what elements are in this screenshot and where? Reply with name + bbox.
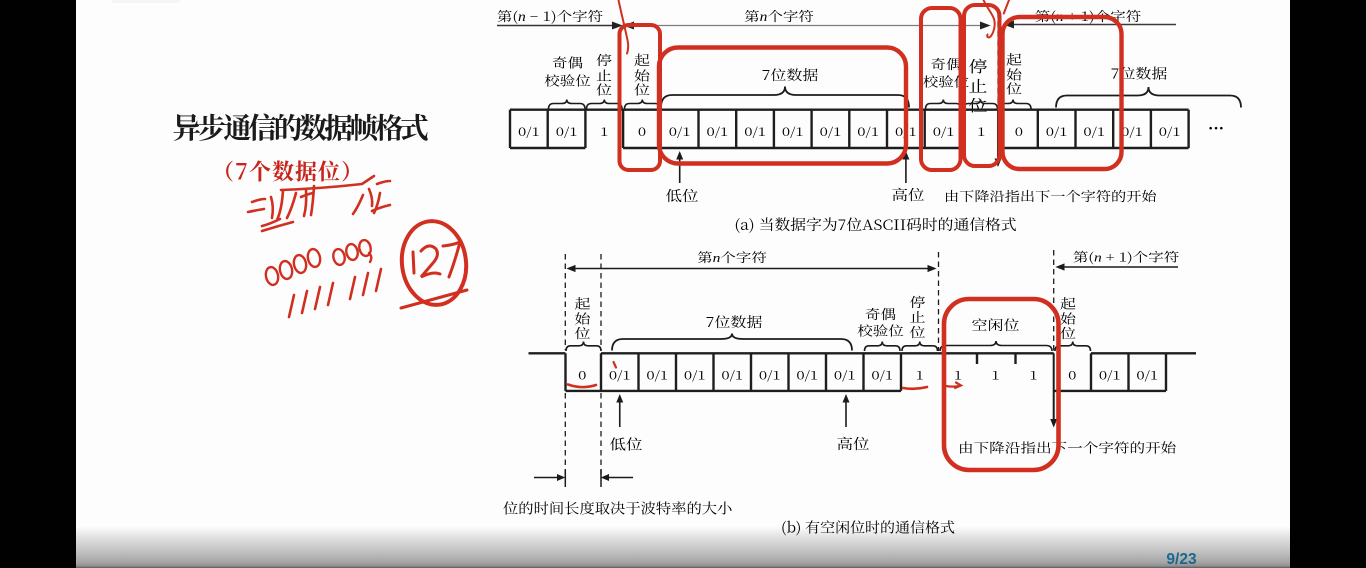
svg-text:校验位: 校验位 [544, 71, 590, 90]
svg-text:···: ··· [1208, 116, 1224, 139]
svg-text:0/1: 0/1 [759, 365, 781, 383]
svg-text:0/1: 0/1 [834, 365, 856, 383]
svg-text:0/1: 0/1 [556, 122, 578, 140]
svg-text:校验位: 校验位 [857, 321, 903, 340]
svg-text:（7个数据位）: （7个数据位） [212, 156, 364, 187]
svg-text:高位: 高位 [837, 433, 870, 453]
svg-text:0/1: 0/1 [1136, 365, 1158, 383]
svg-text:0: 0 [1015, 122, 1023, 140]
svg-text:1: 1 [1029, 365, 1037, 383]
svg-text:空闲位: 空闲位 [972, 315, 1020, 334]
svg-text:位: 位 [1006, 79, 1022, 98]
svg-text:0/1: 0/1 [1083, 122, 1105, 140]
svg-text:低位: 低位 [666, 185, 699, 205]
svg-text:奇偶: 奇偶 [552, 53, 583, 72]
svg-text:第n个字符: 第n个字符 [697, 249, 767, 267]
svg-text:0/1: 0/1 [1159, 122, 1181, 140]
svg-text:第(n − 1)个字符: 第(n − 1)个字符 [497, 6, 603, 25]
svg-text:0/1: 0/1 [707, 122, 729, 140]
svg-text:第n个字符: 第n个字符 [744, 6, 814, 25]
svg-text:0/1: 0/1 [669, 122, 691, 140]
svg-text:0/1: 0/1 [744, 122, 766, 140]
svg-text:位: 位 [596, 80, 612, 99]
svg-text:0: 0 [578, 365, 586, 383]
svg-text:0/1: 0/1 [933, 122, 955, 140]
svg-text:异步通信的数据帧格式: 异步通信的数据帧格式 [172, 106, 428, 147]
svg-text:0: 0 [638, 122, 646, 140]
svg-text:位: 位 [910, 323, 926, 342]
svg-text:位: 位 [575, 324, 591, 343]
svg-text:位: 位 [969, 93, 988, 115]
svg-text:1: 1 [954, 365, 962, 383]
svg-text:0/1: 0/1 [857, 122, 879, 140]
svg-text:0/1: 0/1 [820, 122, 842, 140]
svg-text:0/1: 0/1 [684, 365, 706, 383]
svg-text:0/1: 0/1 [609, 365, 631, 383]
svg-text:0/1: 0/1 [646, 365, 668, 383]
svg-text:7位数据: 7位数据 [762, 65, 819, 84]
svg-text:0/1: 0/1 [1121, 122, 1143, 140]
svg-text:0/1: 0/1 [782, 122, 804, 140]
svg-text:0/1: 0/1 [871, 365, 893, 383]
svg-text:位: 位 [634, 80, 650, 99]
svg-text:第(n + 1)个字符: 第(n + 1)个字符 [1073, 248, 1179, 266]
svg-text:高位: 高位 [892, 184, 925, 204]
svg-text:0/1: 0/1 [1046, 122, 1068, 140]
svg-text:1: 1 [916, 365, 924, 383]
svg-text:低位: 低位 [610, 434, 643, 454]
svg-text:1: 1 [977, 122, 985, 140]
svg-text:0: 0 [1068, 365, 1076, 383]
svg-text:7位数据: 7位数据 [1111, 64, 1168, 83]
svg-text:位: 位 [1060, 324, 1076, 343]
svg-text:(a) 当数据字为7位ASCII码时的通信格式: (a) 当数据字为7位ASCII码时的通信格式 [734, 215, 1016, 235]
svg-text:7位数据: 7位数据 [706, 312, 763, 331]
svg-text:1: 1 [600, 122, 608, 140]
svg-text:0/1: 0/1 [796, 365, 818, 383]
svg-text:0/1: 0/1 [518, 122, 540, 140]
svg-text:奇偶: 奇偶 [931, 54, 962, 73]
svg-text:由下降沿指出下一个字符的开始: 由下降沿指出下一个字符的开始 [944, 187, 1158, 205]
svg-text:位的时间长度取决于波特率的大小: 位的时间长度取决于波特率的大小 [503, 498, 734, 518]
svg-text:由下降沿指出下一个字符的开始: 由下降沿指出下一个字符的开始 [958, 438, 1177, 457]
svg-text:9/23: 9/23 [1166, 551, 1197, 568]
svg-text:(b) 有空闲位时的通信格式: (b) 有空闲位时的通信格式 [781, 517, 955, 537]
svg-text:0/1: 0/1 [1099, 365, 1121, 383]
svg-text:0/1: 0/1 [721, 365, 743, 383]
svg-text:1: 1 [991, 365, 999, 383]
